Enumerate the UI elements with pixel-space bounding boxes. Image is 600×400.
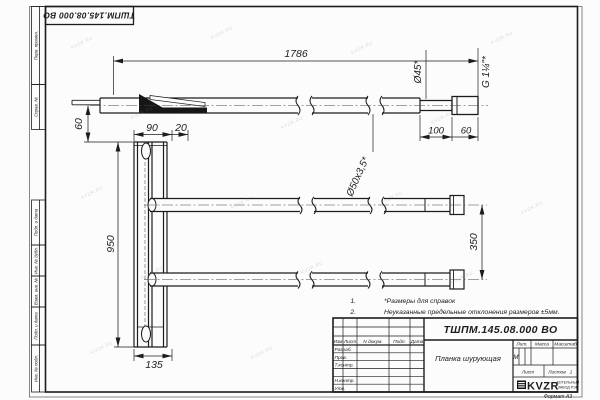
tb-masshtab-label: Масштаб — [554, 342, 577, 348]
tb-listov-label: Листов — [547, 370, 566, 376]
dim-text-100: 100 — [428, 126, 445, 137]
tb-col-izm: Изм — [334, 339, 344, 345]
label-text-dia45: Ø45* — [413, 59, 424, 84]
title-block: Изм Лист N докум. Подп. Дата Разраб. Про… — [333, 318, 580, 393]
plank-plate — [134, 142, 167, 347]
tb-massa-label: Масса — [535, 342, 550, 348]
label-text-thread: G 1¼"* — [480, 55, 492, 88]
label-dia50: Ø50х3,5* — [344, 155, 372, 199]
dimension-135: 135 — [134, 356, 172, 371]
margin-label-podp-data-1: Подп. и дата — [34, 208, 39, 236]
dim-text-950: 950 — [105, 235, 117, 253]
dim-text-350: 350 — [468, 233, 480, 251]
doc-number-box: ТШПМ.145.08.000 ВО — [43, 7, 135, 25]
bottom-tube — [144, 270, 487, 289]
margin-label-vzam-inv: Взам. инв. № — [34, 278, 39, 305]
margin-labels: Перв. примен. Справ. № Подп. и дата Инв.… — [34, 31, 39, 382]
tb-listov-value: 1 — [570, 370, 573, 376]
dimension-90-20: 90 20 — [134, 122, 188, 135]
margin-label-inv-dubl: Инв. № дубл. — [34, 247, 39, 274]
tb-list-label: Лист — [521, 370, 534, 376]
dimension-60-left: 60 — [73, 106, 88, 143]
tb-lit-label: Лит. — [515, 342, 527, 348]
tb-col-data: Дата — [410, 339, 424, 345]
dim-text-60-left: 60 — [73, 118, 85, 130]
dimension-100-60: 100 60 — [420, 126, 478, 138]
tb-row-utv: Утв. — [335, 386, 346, 392]
margin-label-inv-podl: Инв. № подл. — [34, 355, 39, 382]
label-thread: G 1¼"* — [480, 55, 492, 88]
dimension-350: 350 — [468, 205, 482, 280]
tb-row-razrab: Разраб. — [335, 347, 352, 353]
format-label: Формат А3 — [544, 394, 572, 400]
note-2-number: 2. — [349, 309, 356, 316]
dim-text-60-right: 60 — [461, 126, 472, 137]
kvzr-logo-text: KVZR — [527, 381, 559, 393]
note-2-text: Неуказанные предельные отклонения размер… — [384, 308, 560, 316]
dimension-1786: 1786 — [114, 48, 479, 61]
tb-row-prov: Пров. — [335, 355, 348, 361]
label-dia45: Ø45* — [413, 59, 424, 84]
dim-text-1786: 1786 — [284, 48, 308, 60]
margin-label-sprav-no: Справ. № — [34, 97, 39, 117]
middle-tube — [144, 196, 487, 215]
tb-col-podp: Подп. — [393, 339, 406, 345]
margin-label-perv-primen: Перв. примен. — [34, 31, 39, 60]
tb-designation: ТШПМ.145.08.000 ВО — [443, 324, 557, 336]
margin-label-podp-data-2: Подп. и дата — [34, 312, 39, 340]
tb-col-ndoc: N докум. — [363, 339, 382, 345]
org-name-line1: КОТЕЛЬНЫЙ — [557, 381, 580, 385]
top-tube — [72, 94, 488, 115]
tb-col-list: Лист — [343, 339, 356, 345]
tb-row-nkontr: Н.контр. — [335, 378, 355, 384]
tb-row-tkontr: Т.контр. — [335, 363, 354, 369]
kvzr-logo: KVZR КОТЕЛЬНЫЙ ЗАВОД РЭП — [517, 381, 580, 393]
dimension-950: 950 — [105, 142, 118, 347]
notes: 1. *Размеры для справок 2. Неуказанные п… — [349, 297, 559, 316]
dim-text-20: 20 — [174, 122, 187, 134]
drawing-canvas: Перв. примен. Справ. № Подп. и дата Инв.… — [0, 0, 600, 400]
org-name-line2: ЗАВОД РЭП — [558, 386, 579, 390]
label-text-dia50: Ø50х3,5* — [344, 155, 372, 199]
tb-part-name: Планка шурующая — [435, 354, 501, 363]
dim-text-135: 135 — [145, 359, 163, 371]
tb-lit-value: М — [513, 354, 519, 361]
note-1-text: *Размеры для справок — [384, 297, 456, 305]
dim-text-90: 90 — [146, 122, 158, 134]
note-1-number: 1. — [350, 298, 356, 305]
doc-number-rotated: ТШПМ.145.08.000 ВО — [43, 11, 135, 21]
drawing-sheet: KVZR.RU KVZR.RU KVZR.RU KVZR.RU KVZR.RU … — [0, 0, 600, 400]
